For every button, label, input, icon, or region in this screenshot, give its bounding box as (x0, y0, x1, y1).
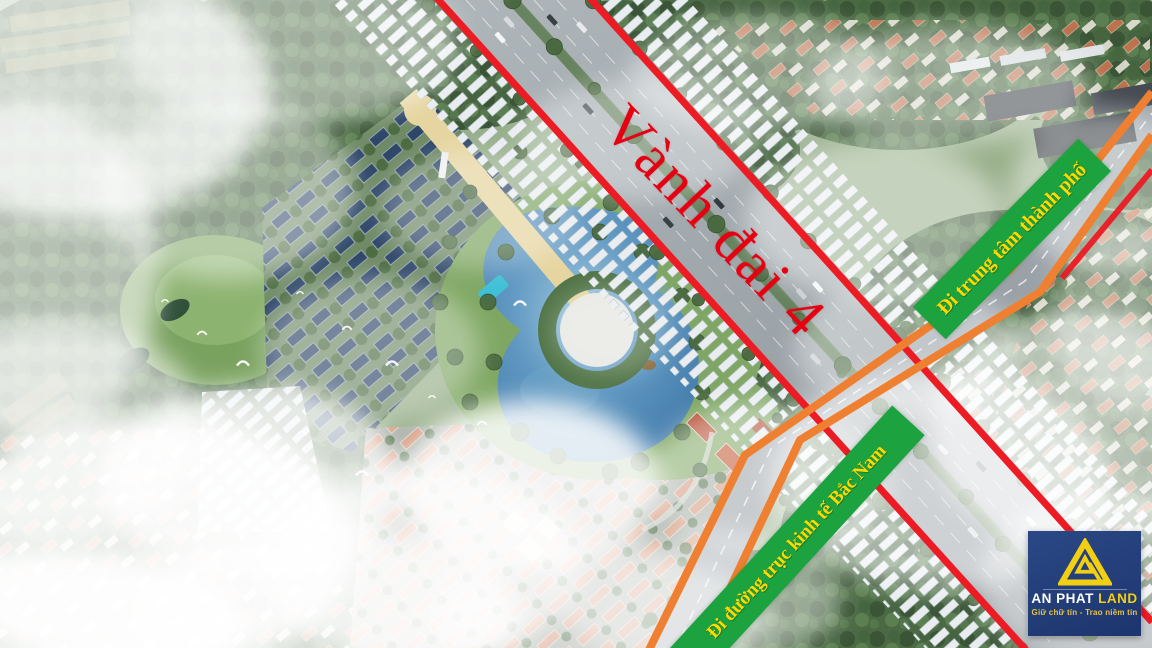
tagline-right: Trao niềm tin (1085, 608, 1137, 617)
logo-tagline: Giữ chữ tín - Trao niềm tin (1032, 609, 1138, 617)
aerial-render (0, 0, 1152, 648)
logo-brand: AN PHAT LAND (1031, 592, 1137, 606)
aerial-masterplan-scene: Vành đai 4 Đi trung tâm thành phố Đi đườ… (0, 0, 1152, 648)
anphat-land-logo: AN PHAT LAND Giữ chữ tín - Trao niềm tin (1028, 531, 1141, 636)
logo-divider (1043, 589, 1127, 590)
tagline-left: Giữ chữ tín (1032, 608, 1078, 617)
logo-brand-land: LAND (1098, 591, 1138, 606)
anphat-triangle-logo-icon (1058, 538, 1112, 586)
tagline-separator: - (1080, 608, 1083, 617)
logo-brand-anphat: AN PHAT (1031, 591, 1094, 606)
